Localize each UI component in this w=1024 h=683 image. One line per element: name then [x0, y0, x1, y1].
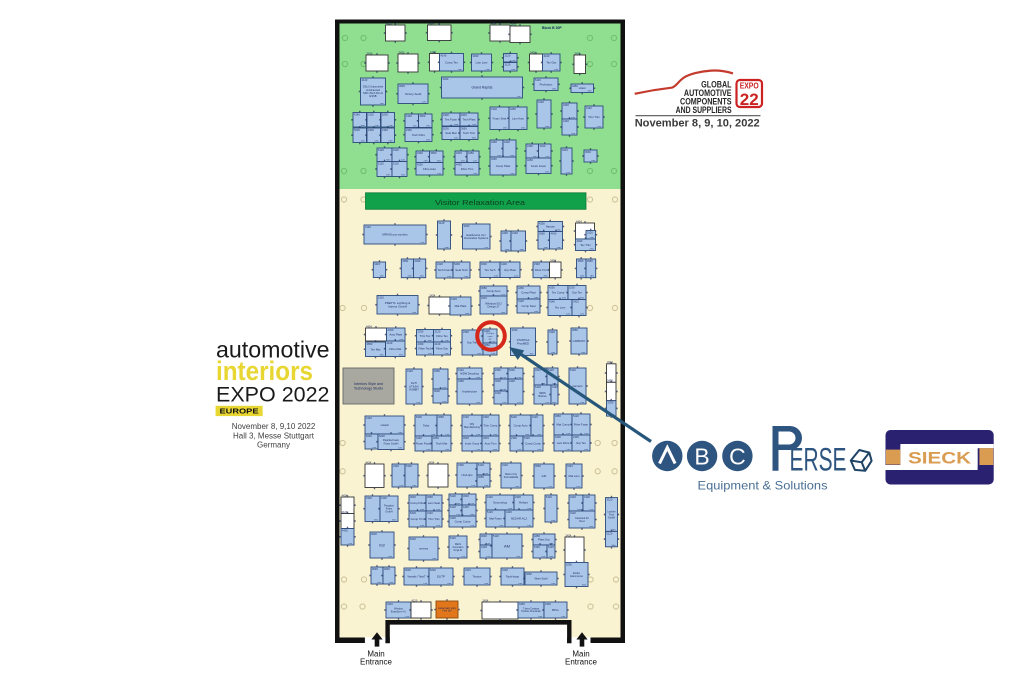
svg-text:4430: 4430 [509, 379, 515, 383]
svg-text:602/AR AL2: 602/AR AL2 [511, 517, 527, 521]
svg-text:3650: 3650 [555, 414, 561, 418]
svg-text:2330: 2330 [563, 103, 569, 107]
svg-text:ProuMED: ProuMED [517, 341, 529, 345]
svg-text:18m: 18m [515, 486, 519, 488]
svg-text:4250: 4250 [518, 286, 524, 290]
svg-text:3120: 3120 [381, 496, 387, 500]
svg-text:36m: 36m [544, 276, 548, 278]
svg-text:3030: 3030 [434, 389, 440, 393]
svg-text:5230: 5230 [410, 511, 416, 515]
svg-text:Fibre Trim: Fibre Trim [461, 167, 474, 171]
svg-text:croin: croin [488, 335, 494, 338]
svg-text:4430: 4430 [555, 435, 561, 439]
svg-text:Tech Trim: Tech Trim [463, 131, 476, 135]
svg-text:IG2: IG2 [379, 543, 385, 547]
svg-text:3120: 3120 [505, 63, 511, 67]
svg-text:5230: 5230 [443, 127, 449, 131]
svg-text:Grand Rapids: Grand Rapids [472, 86, 493, 90]
svg-text:5120: 5120 [535, 385, 541, 389]
svg-text:4250: 4250 [539, 222, 545, 226]
svg-text:18m: 18m [447, 583, 451, 585]
svg-text:Auto Plast: Auto Plast [389, 333, 402, 337]
svg-text:GmbH: GmbH [385, 511, 392, 514]
svg-text:36m: 36m [388, 556, 392, 558]
svg-text:24m: 24m [412, 312, 416, 314]
svg-text:3120: 3120 [538, 100, 544, 104]
svg-text:18m: 18m [518, 583, 522, 585]
svg-text:12m: 12m [491, 353, 495, 355]
svg-text:3650: 3650 [587, 259, 593, 263]
svg-text:3415: 3415 [483, 436, 489, 440]
svg-text:Next: Next [579, 520, 584, 523]
svg-text:Tachi-longo: Tachi-longo [506, 574, 520, 578]
svg-text:3120: 3120 [570, 495, 576, 499]
svg-text:Hammeros: Hammeros [570, 574, 583, 578]
svg-text:Grp Tex: Grp Tex [576, 441, 586, 445]
svg-text:Trim Comp: Trim Comp [484, 424, 498, 428]
svg-text:24m: 24m [389, 141, 393, 143]
svg-text:4120: 4120 [386, 21, 392, 25]
svg-text:2330: 2330 [388, 328, 394, 332]
svg-text:12m: 12m [413, 126, 417, 128]
svg-text:18m: 18m [380, 103, 384, 105]
svg-text:Decorative Systems: Decorative Systems [464, 236, 489, 240]
svg-text:3430: 3430 [511, 22, 517, 26]
svg-text:4434: 4434 [576, 219, 582, 223]
svg-text:Linker: Linker [579, 86, 586, 90]
svg-text:12m: 12m [566, 314, 570, 316]
svg-text:Tex Grp: Tex Grp [546, 61, 556, 65]
svg-text:18m: 18m [597, 126, 601, 128]
svg-text:18m: 18m [454, 138, 458, 140]
svg-text:2330: 2330 [406, 128, 412, 132]
svg-text:CARBODY: CARBODY [573, 339, 586, 343]
svg-text:24m: 24m [477, 353, 481, 355]
svg-text:Foam Seat: Foam Seat [493, 116, 507, 120]
svg-text:4250: 4250 [458, 379, 464, 383]
svg-text:36m: 36m [380, 355, 384, 357]
svg-text:4140: 4140 [416, 436, 422, 440]
svg-text:18m: 18m [549, 556, 553, 558]
svg-text:18m: 18m [401, 175, 405, 177]
svg-text:36m: 36m [589, 526, 593, 528]
svg-text:12m: 12m [348, 543, 352, 545]
svg-text:Comp Auto: Comp Auto [487, 289, 501, 293]
svg-text:36m: 36m [465, 313, 469, 315]
svg-text:4120: 4120 [412, 598, 418, 602]
svg-text:36m: 36m [520, 249, 524, 251]
svg-text:12m: 12m [502, 402, 506, 404]
svg-text:36m: 36m [399, 355, 403, 357]
svg-text:18m: 18m [445, 449, 449, 451]
svg-text:36m: 36m [454, 124, 458, 126]
svg-text:Grp Tex: Grp Tex [572, 291, 582, 295]
svg-text:18m: 18m [591, 160, 595, 162]
svg-text:4140: 4140 [487, 495, 493, 499]
svg-text:36m: 36m [582, 585, 586, 587]
svg-text:Tech Foam: Tech Foam [438, 268, 453, 272]
svg-text:12m: 12m [470, 525, 474, 527]
svg-text:4430: 4430 [527, 144, 533, 148]
svg-text:3030: 3030 [410, 495, 416, 499]
svg-text:5120: 5120 [548, 545, 554, 549]
svg-text:3030: 3030 [481, 262, 487, 266]
svg-text:24m: 24m [408, 276, 412, 278]
svg-text:Reliant: Reliant [519, 500, 528, 504]
svg-text:Comp Auto: Comp Auto [514, 424, 528, 428]
svg-text:24m: 24m [566, 449, 570, 451]
svg-text:5120: 5120 [570, 368, 576, 372]
svg-text:5120: 5120 [546, 495, 552, 499]
svg-text:18m: 18m [476, 402, 480, 404]
svg-text:smeva: smeva [419, 547, 428, 551]
svg-text:3415: 3415 [567, 464, 573, 468]
svg-text:Tex Tech: Tex Tech [485, 268, 496, 272]
svg-text:36m: 36m [392, 520, 396, 522]
svg-text:Entrance: Entrance [565, 657, 598, 666]
svg-text:Foam Foam: Foam Foam [416, 442, 432, 446]
svg-text:3434: 3434 [430, 293, 436, 297]
svg-text:Seat Tech: Seat Tech [455, 268, 468, 272]
svg-text:Comp Plast: Comp Plast [496, 164, 511, 168]
svg-text:3650: 3650 [578, 259, 584, 263]
svg-text:3120: 3120 [532, 415, 538, 419]
svg-text:36m: 36m [472, 138, 476, 140]
svg-text:3120: 3120 [607, 498, 613, 502]
svg-text:3415: 3415 [387, 602, 393, 606]
svg-text:Comp Fibre: Comp Fibre [410, 501, 425, 505]
svg-text:4140: 4140 [586, 106, 592, 110]
svg-text:4140: 4140 [382, 128, 388, 132]
svg-text:Germany: Germany [257, 440, 290, 449]
svg-text:Mat Plast: Mat Plast [455, 304, 467, 308]
svg-text:Lisadi: Lisadi [381, 423, 389, 427]
svg-text:4140: 4140 [366, 416, 372, 420]
svg-text:12m: 12m [361, 141, 365, 143]
svg-text:12m: 12m [576, 486, 580, 488]
svg-text:24m: 24m [554, 69, 558, 71]
svg-text:18m: 18m [537, 449, 541, 451]
svg-text:3430: 3430 [367, 51, 373, 55]
svg-text:24m: 24m [420, 276, 424, 278]
svg-text:4430: 4430 [502, 231, 508, 235]
svg-text:Liebermann party: Liebermann party [438, 607, 457, 610]
svg-text:18m: 18m [557, 247, 561, 249]
svg-text:24m: 24m [389, 125, 393, 127]
svg-text:4434: 4434 [366, 460, 372, 464]
svg-text:Fibre Tech: Fibre Tech [418, 347, 431, 351]
svg-text:3030: 3030 [481, 534, 487, 538]
svg-text:5120: 5120 [378, 296, 384, 300]
svg-text:24m: 24m [447, 276, 451, 278]
svg-text:18m: 18m [511, 69, 515, 71]
svg-text:2330: 2330 [573, 435, 579, 439]
svg-text:24m: 24m [389, 582, 393, 584]
svg-text:3120: 3120 [463, 415, 469, 419]
svg-text:24m: 24m [472, 124, 476, 126]
svg-text:24m: 24m [551, 520, 555, 522]
svg-text:3120: 3120 [584, 495, 590, 499]
svg-text:24m: 24m [561, 616, 565, 618]
svg-text:5230: 5230 [454, 262, 460, 266]
svg-text:Trim Tex: Trim Tex [420, 334, 431, 338]
svg-text:3120: 3120 [505, 54, 511, 58]
svg-text:Lam Fibre: Lam Fibre [557, 441, 570, 445]
svg-text:4250: 4250 [468, 151, 474, 155]
svg-text:3030: 3030 [495, 379, 501, 383]
svg-text:7 dees Creators: 7 dees Creators [523, 607, 540, 610]
svg-text:3650: 3650 [478, 475, 484, 479]
svg-text:3430: 3430 [607, 379, 613, 383]
svg-text:24m: 24m [412, 485, 416, 487]
svg-text:November 8, 9, 10, 2022: November 8, 9, 10, 2022 [635, 117, 760, 129]
svg-text:4434: 4434 [491, 21, 497, 25]
svg-text:November 8, 9,10 2022: November 8, 9,10 2022 [232, 422, 316, 431]
svg-text:3120: 3120 [368, 113, 374, 117]
svg-text:Visitor Relaxation Area: Visitor Relaxation Area [435, 198, 525, 207]
svg-text:Fibre Auto: Fibre Auto [423, 167, 436, 171]
svg-text:12m: 12m [511, 60, 515, 62]
svg-text:3120: 3120 [393, 464, 399, 468]
svg-text:3120: 3120 [427, 511, 433, 515]
svg-text:12m: 12m [545, 402, 549, 404]
svg-text:ERSE: ERSE [790, 442, 847, 478]
svg-text:F&I: F&I [542, 474, 547, 478]
svg-text:Lam Lam: Lam Lam [476, 61, 488, 65]
svg-text:2330: 2330 [443, 113, 449, 117]
svg-text:2330: 2330 [511, 436, 517, 440]
svg-text:Versalis / TechT: Versalis / TechT [407, 574, 426, 578]
svg-text:4140: 4140 [552, 385, 558, 389]
svg-text:4430: 4430 [342, 529, 348, 533]
svg-text:24m: 24m [545, 172, 549, 174]
svg-text:3030: 3030 [463, 436, 469, 440]
svg-text:Fibre Mat: Fibre Mat [389, 347, 401, 351]
svg-text:AM: AM [504, 543, 510, 548]
svg-text:12m: 12m [420, 242, 424, 244]
svg-text:2330: 2330 [415, 259, 421, 263]
svg-text:12m: 12m [471, 485, 475, 487]
svg-text:Fibre Tex: Fibre Tex [436, 334, 448, 338]
svg-text:WDW Decoding: WDW Decoding [460, 371, 479, 375]
svg-text:3030: 3030 [399, 84, 405, 88]
svg-text:4140: 4140 [406, 114, 412, 118]
svg-text:18m: 18m [551, 352, 555, 354]
svg-text:18m: 18m [590, 276, 594, 278]
svg-text:Seat Mat: Seat Mat [445, 131, 456, 135]
svg-text:EssexDev 4 U: EssexDev 4 U [391, 610, 406, 613]
svg-text:B: B [694, 443, 709, 469]
svg-text:Tech Plast: Tech Plast [463, 118, 476, 122]
svg-text:3434: 3434 [428, 21, 434, 25]
svg-text:12m: 12m [566, 172, 570, 174]
svg-text:12m: 12m [405, 616, 409, 618]
svg-text:3030: 3030 [473, 54, 479, 58]
svg-text:Gmja 31: Gmja 31 [453, 549, 463, 552]
svg-text:3415: 3415 [465, 568, 471, 572]
svg-text:4250: 4250 [527, 158, 533, 162]
svg-text:3120: 3120 [451, 297, 457, 301]
svg-text:5230: 5230 [354, 128, 360, 132]
svg-text:4250: 4250 [491, 157, 497, 161]
svg-text:Comp Seat: Comp Seat [522, 304, 536, 308]
svg-text:12m: 12m [399, 485, 403, 487]
svg-text:5120: 5120 [493, 534, 499, 538]
svg-text:3030: 3030 [372, 567, 378, 571]
svg-text:Taha: Taha [423, 423, 430, 427]
svg-text:TLM jen: TLM jen [486, 333, 495, 335]
svg-text:3650: 3650 [427, 495, 433, 499]
svg-text:5120: 5120 [573, 414, 579, 418]
svg-text:3030: 3030 [585, 150, 591, 154]
svg-text:3650: 3650 [461, 127, 467, 131]
svg-text:12m: 12m [423, 583, 427, 585]
svg-text:24m: 24m [426, 449, 430, 451]
svg-text:Profusion: Profusion [540, 82, 553, 86]
svg-text:C: C [729, 443, 746, 469]
svg-text:4140: 4140 [563, 119, 569, 123]
svg-text:18m: 18m [551, 583, 555, 585]
svg-text:3030: 3030 [405, 568, 411, 572]
svg-text:3120: 3120 [481, 545, 487, 549]
svg-text:12m: 12m [398, 448, 402, 450]
svg-text:5120: 5120 [478, 463, 484, 467]
svg-text:12m: 12m [375, 125, 379, 127]
svg-text:3434: 3434 [566, 533, 572, 537]
svg-text:5230: 5230 [416, 415, 422, 419]
svg-text:18m: 18m [544, 247, 548, 249]
svg-text:Fibre Trim: Fibre Trim [535, 268, 548, 272]
svg-text:12m: 12m [436, 525, 440, 527]
svg-text:AND SUPPLIERS: AND SUPPLIERS [676, 105, 732, 115]
svg-text:12m: 12m [484, 247, 488, 249]
svg-text:36m: 36m [493, 449, 497, 451]
svg-text:36m: 36m [445, 247, 449, 249]
svg-text:4140: 4140 [512, 231, 518, 235]
svg-text:Hudson Chemicals: Hudson Chemicals [521, 611, 541, 613]
svg-text:Foam GmbH: Foam GmbH [384, 441, 399, 445]
svg-text:HOBBIT: HOBBIT [409, 388, 419, 392]
svg-text:Trim Trim: Trim Trim [428, 517, 440, 521]
svg-text:Fibre Foam: Fibre Foam [574, 423, 589, 427]
svg-text:Mat Comp: Mat Comp [557, 423, 570, 427]
svg-text:18m: 18m [386, 175, 390, 177]
svg-text:Comp Plast: Comp Plast [521, 291, 536, 295]
svg-text:4250: 4250 [519, 602, 525, 606]
svg-text:5120: 5120 [406, 464, 412, 468]
svg-text:22: 22 [740, 90, 759, 109]
svg-text:Architecture: Architecture [462, 389, 477, 393]
svg-text:4434: 4434 [366, 324, 372, 328]
svg-text:18m: 18m [484, 583, 488, 585]
svg-text:Comp Trim: Comp Trim [411, 517, 425, 521]
svg-text:18m: 18m [581, 352, 585, 354]
svg-text:18m: 18m [521, 128, 525, 130]
svg-text:18m: 18m [571, 133, 575, 135]
svg-text:Comp Comp: Comp Comp [455, 520, 471, 524]
svg-text:2330: 2330 [608, 401, 614, 405]
svg-text:5120: 5120 [393, 162, 399, 166]
svg-text:12m: 12m [484, 485, 488, 487]
svg-text:Tex Comp: Tex Comp [552, 291, 565, 295]
svg-text:ELITP: ELITP [437, 574, 445, 578]
svg-text:2330: 2330 [463, 330, 469, 334]
svg-text:3120: 3120 [570, 511, 576, 515]
svg-text:4430: 4430 [512, 328, 518, 332]
svg-text:3650: 3650 [572, 328, 578, 332]
svg-text:Tech Mat: Tech Mat [436, 442, 448, 446]
svg-text:Hall 3, Messe Stuttgart: Hall 3, Messe Stuttgart [233, 431, 315, 440]
svg-text:18m: 18m [380, 276, 384, 278]
svg-text:5230: 5230 [430, 568, 436, 572]
svg-text:3030: 3030 [463, 494, 469, 498]
svg-text:4430: 4430 [463, 505, 469, 509]
svg-text:24m: 24m [516, 556, 520, 558]
svg-text:12m: 12m [428, 353, 432, 355]
svg-text:5120: 5120 [378, 162, 384, 166]
svg-text:4120: 4120 [430, 50, 436, 54]
svg-text:4140: 4140 [354, 113, 360, 117]
svg-text:24m: 24m [584, 449, 588, 451]
svg-text:5120: 5120 [439, 221, 445, 225]
svg-text:2330: 2330 [418, 342, 424, 346]
svg-text:Lam Auto: Lam Auto [512, 116, 524, 120]
svg-text:Hanote: Hanote [546, 224, 555, 228]
svg-text:24m: 24m [486, 69, 490, 71]
svg-text:3120: 3120 [549, 330, 555, 334]
svg-text:5120: 5120 [487, 510, 493, 514]
svg-text:5120: 5120 [450, 505, 456, 509]
svg-text:3415: 3415 [573, 300, 579, 304]
svg-text:4140: 4140 [441, 54, 447, 58]
svg-text:Trim Trim: Trim Trim [588, 115, 600, 119]
svg-text:12m: 12m [514, 276, 518, 278]
svg-text:4140: 4140 [549, 300, 555, 304]
svg-text:Tecsos: Tecsos [473, 574, 482, 578]
svg-text:36m: 36m [501, 312, 505, 314]
svg-text:3030: 3030 [464, 224, 470, 228]
svg-text:Comp Tex: Comp Tex [445, 60, 458, 64]
svg-text:Tex Mat: Tex Mat [371, 347, 381, 351]
svg-text:24m: 24m [588, 91, 592, 93]
svg-text:2330: 2330 [368, 128, 374, 132]
svg-text:3650: 3650 [526, 572, 532, 576]
svg-text:3415: 3415 [481, 296, 487, 300]
svg-text:3120: 3120 [393, 148, 399, 152]
svg-text:12m: 12m [486, 556, 490, 558]
svg-text:36m: 36m [505, 249, 509, 251]
svg-text:Tex Foam: Tex Foam [445, 118, 458, 122]
svg-text:18m: 18m [473, 173, 477, 175]
svg-text:24m: 24m [590, 249, 594, 251]
svg-text:3120: 3120 [491, 107, 497, 111]
svg-text:4430: 4430 [501, 262, 507, 266]
svg-text:36m: 36m [612, 545, 616, 547]
svg-text:4434: 4434 [342, 493, 348, 497]
svg-text:3434: 3434 [607, 360, 613, 364]
svg-text:4250: 4250 [433, 436, 439, 440]
svg-text:Block B 30P: Block B 30P [542, 26, 562, 30]
svg-text:interiors: interiors [216, 356, 313, 386]
svg-text:4430: 4430 [540, 144, 546, 148]
svg-text:18m: 18m [552, 89, 556, 91]
svg-text:2330: 2330 [366, 496, 372, 500]
svg-text:3030: 3030 [443, 77, 449, 81]
svg-text:12m: 12m [442, 401, 446, 403]
svg-text:2330: 2330 [458, 463, 464, 467]
svg-text:4140: 4140 [365, 225, 371, 229]
svg-text:2330: 2330 [534, 262, 540, 266]
